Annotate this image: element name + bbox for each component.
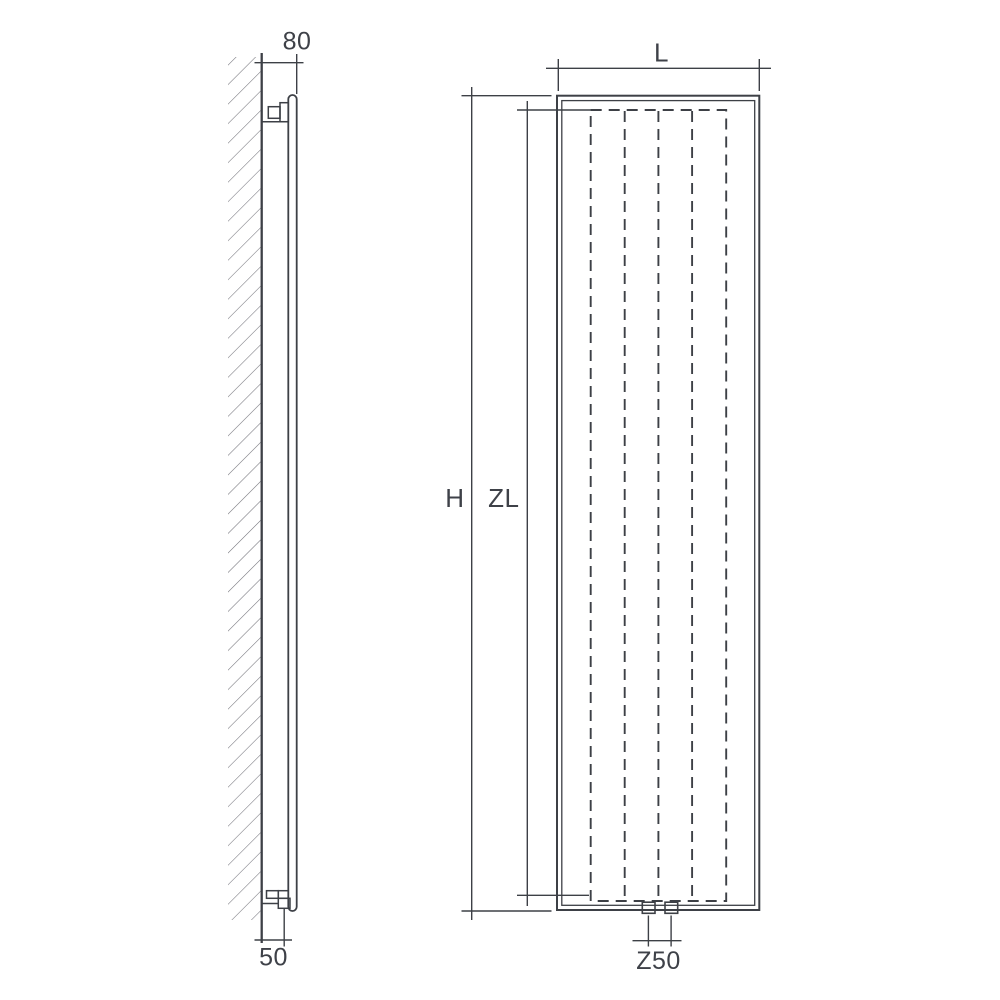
drawing-canvas: 80 50 L xyxy=(0,0,1000,1000)
top-mounting-bracket xyxy=(262,103,288,122)
bottom-mounting-bracket xyxy=(262,891,288,904)
heating-panel-hidden-edges xyxy=(591,110,727,901)
front-view: L H ZL Z50 xyxy=(445,38,771,976)
bracket-arm xyxy=(268,107,280,119)
side-view: 80 50 xyxy=(228,28,311,972)
dimension-width: L xyxy=(546,38,771,92)
radiator-panel-profile xyxy=(288,95,296,911)
dimension-connection-spacing: Z50 xyxy=(633,916,682,976)
connector-left xyxy=(642,902,655,913)
bracket-clip xyxy=(280,103,288,122)
dimension-label-ZL: ZL xyxy=(488,483,519,513)
dimension-label-80: 80 xyxy=(283,28,312,56)
connector-right xyxy=(665,902,678,913)
dimension-wall-depth: 80 xyxy=(255,28,312,95)
bracket-clip xyxy=(278,891,288,899)
dimension-panel-height: ZL xyxy=(488,101,593,906)
dimension-label-50: 50 xyxy=(259,944,288,972)
dimension-label-L: L xyxy=(654,38,669,68)
wall-hatching xyxy=(228,57,262,920)
dimension-label-H: H xyxy=(445,483,464,513)
radiator-technical-drawing: 80 50 L xyxy=(0,0,1000,1000)
dimension-label-Z50: Z50 xyxy=(636,947,681,975)
bracket-arm xyxy=(267,891,279,899)
